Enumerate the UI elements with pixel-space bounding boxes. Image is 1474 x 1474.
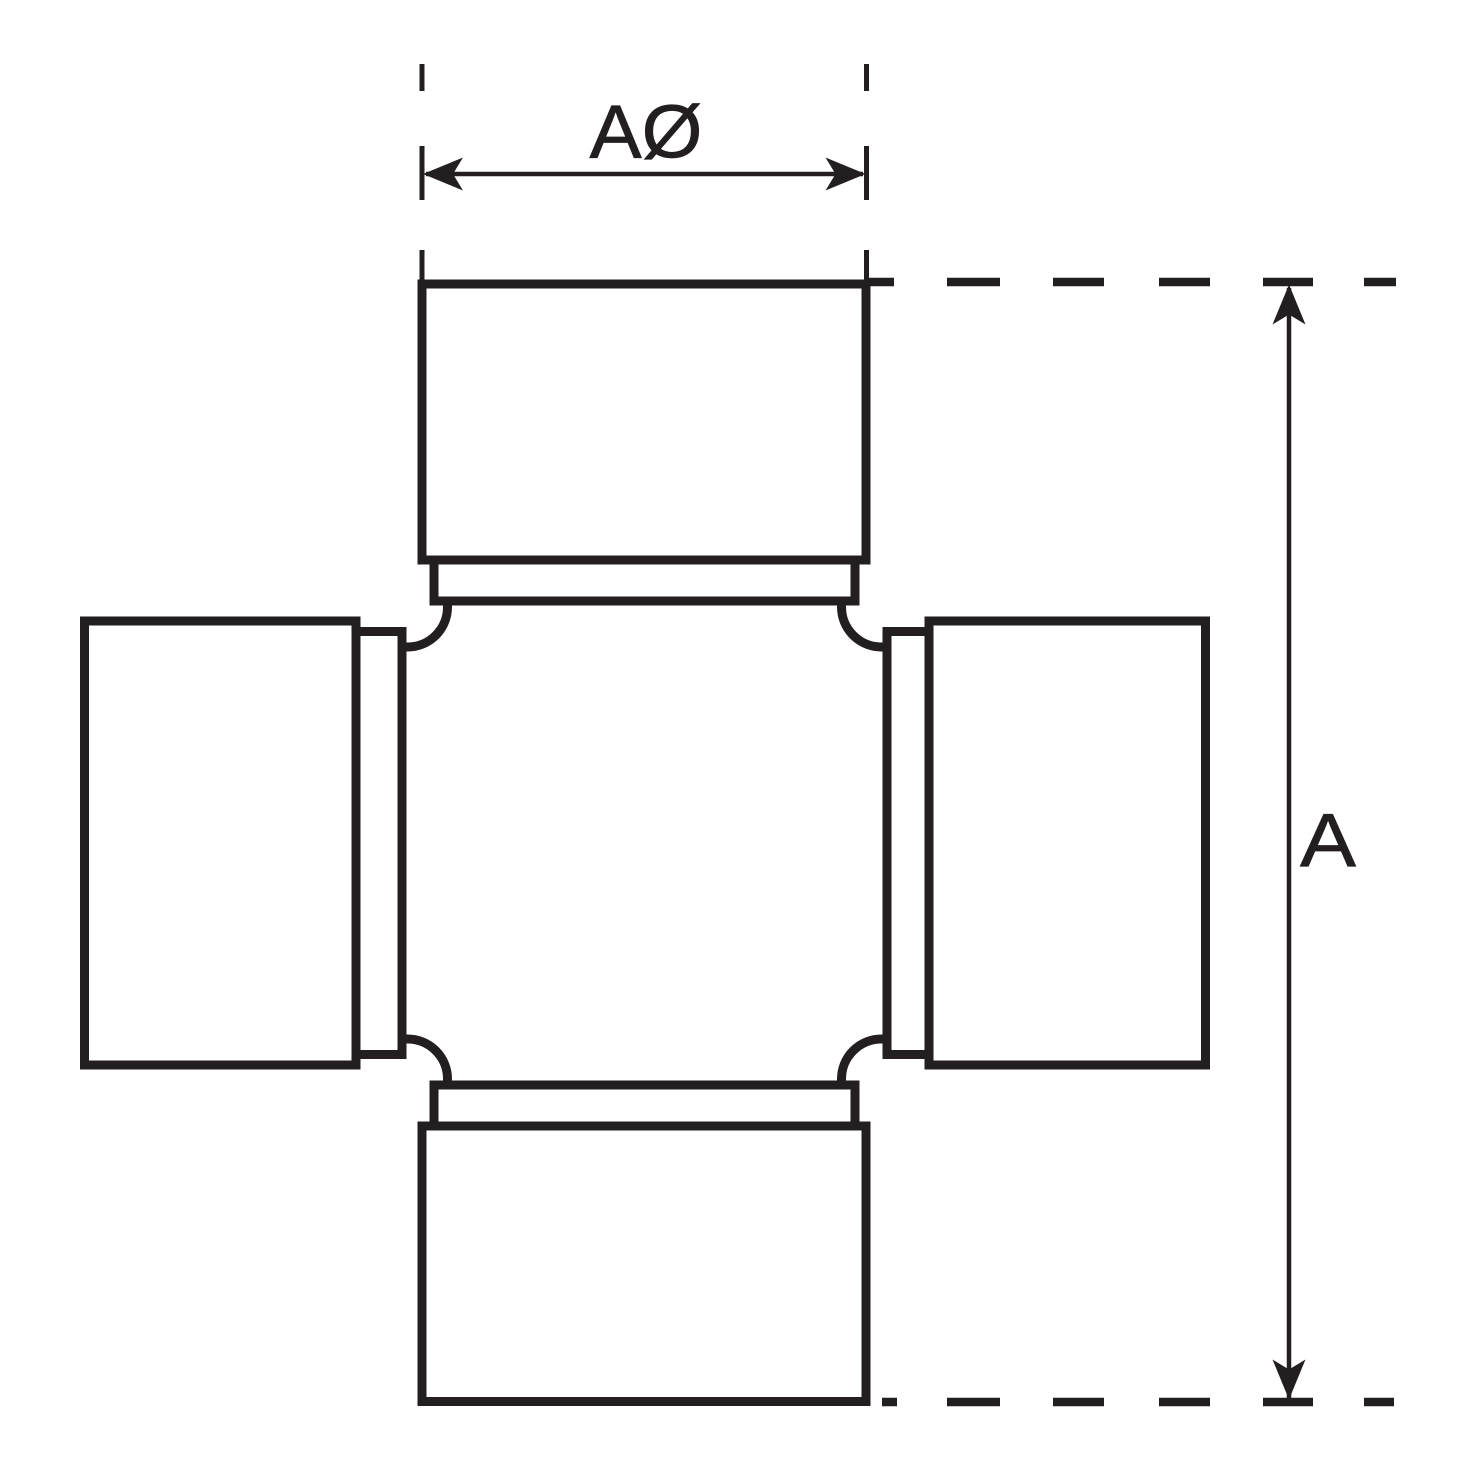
svg-text:A: A [1300, 798, 1356, 882]
svg-text:AØ: AØ [590, 90, 703, 174]
